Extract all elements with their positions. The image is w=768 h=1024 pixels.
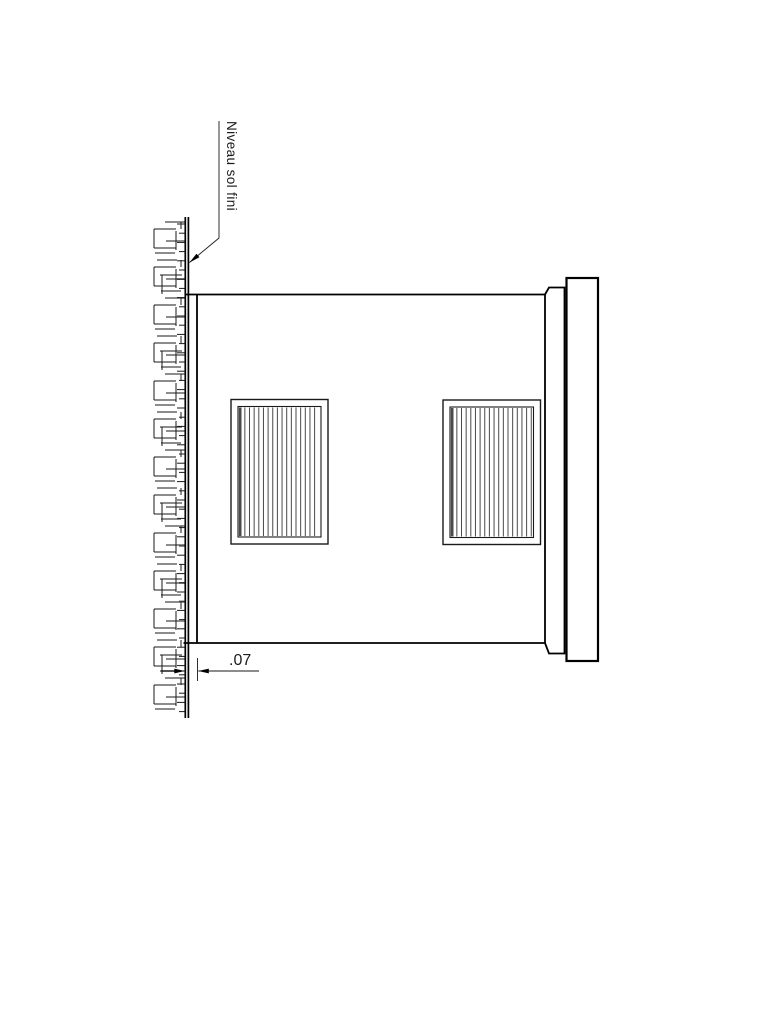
wall-masonry-hatch (154, 222, 186, 712)
dimension-label: .07 (229, 653, 251, 669)
flange-step-outline (545, 288, 565, 654)
drawing-canvas: Niveau sol fini .07 (0, 0, 768, 1024)
flange-outer-outline (567, 278, 599, 661)
grille-right (443, 400, 541, 545)
grille-left (231, 400, 328, 545)
ground-level-leader (190, 121, 220, 263)
ground-level-label: Niveau sol fini (222, 121, 240, 211)
technical-drawing (0, 0, 768, 1024)
